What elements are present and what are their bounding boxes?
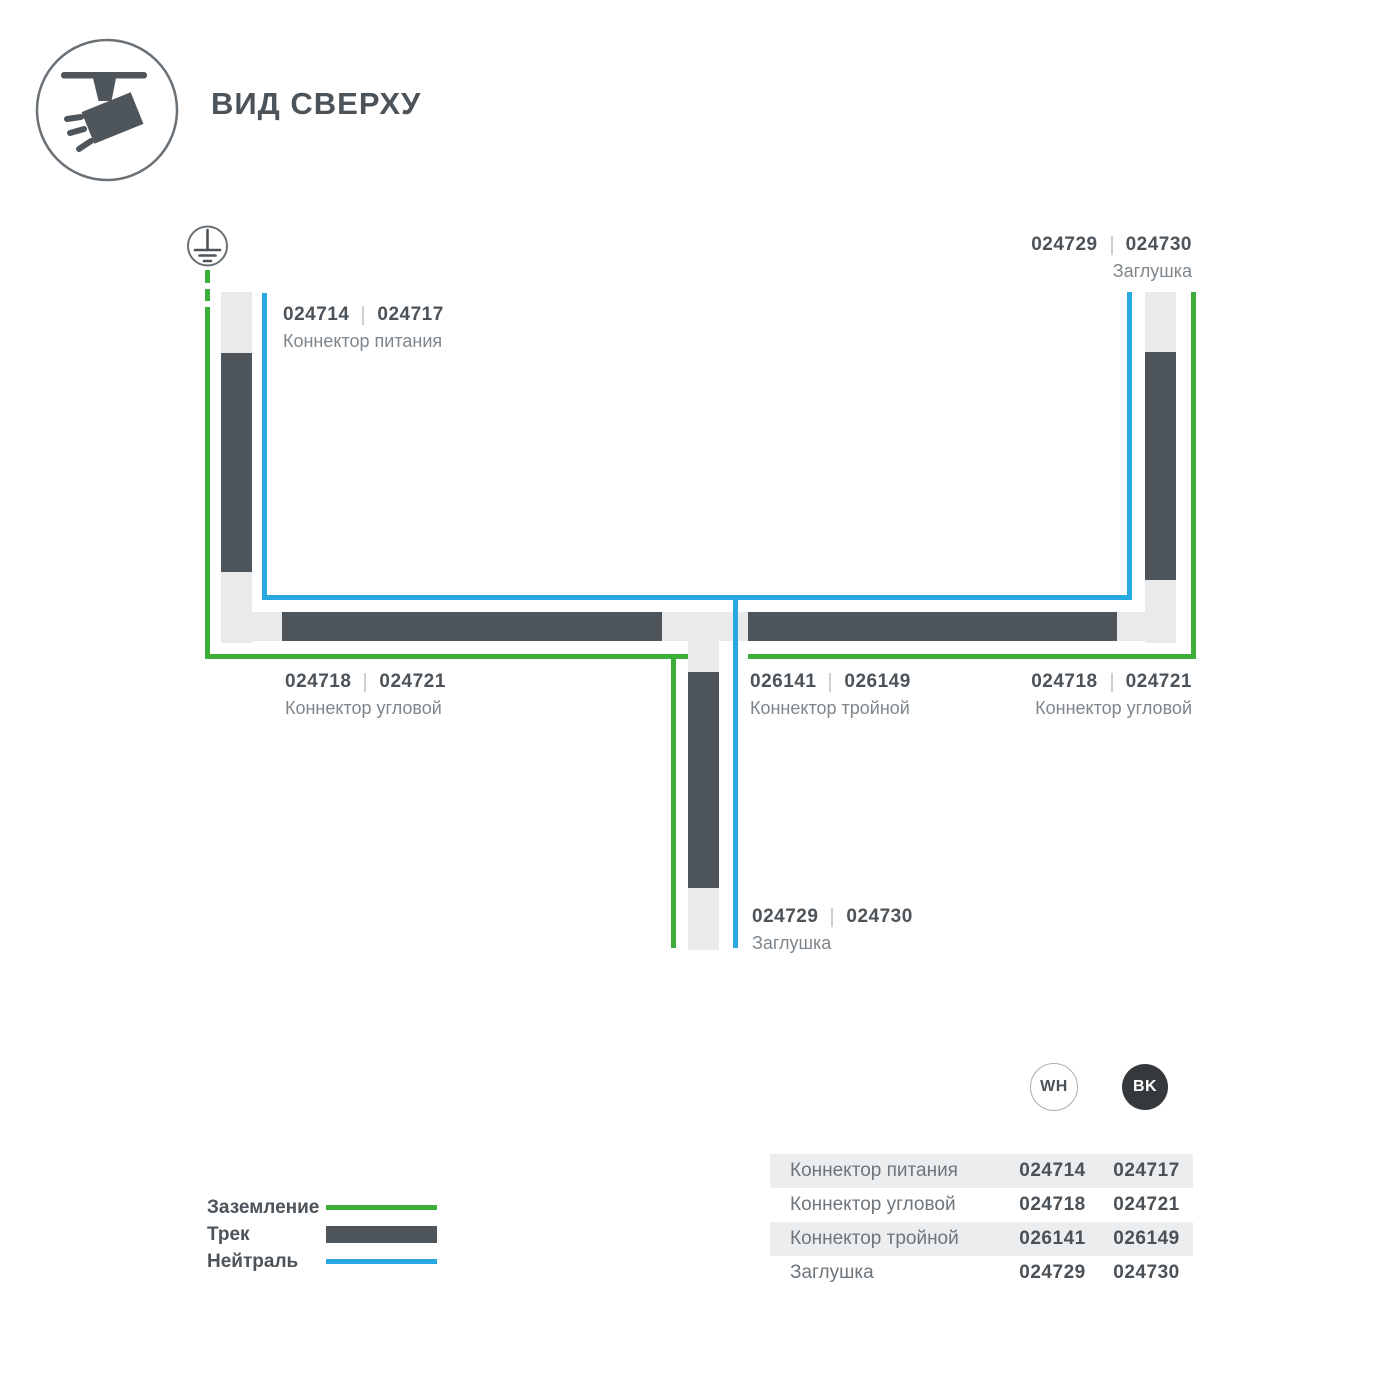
code-bk: 024721 xyxy=(379,671,445,693)
table-row: Коннектор питания 024714 024717 xyxy=(770,1154,1193,1188)
part-code-wh: 024729 xyxy=(1005,1262,1100,1284)
code-pair: 026141 026149 xyxy=(750,671,911,693)
corner-connector-left-arm xyxy=(252,612,282,641)
variant-badge-black: BK xyxy=(1122,1064,1168,1110)
code-bk: 024717 xyxy=(377,304,443,326)
part-table: Коннектор питания 024714 024717 Коннекто… xyxy=(770,1154,1193,1290)
part-code-bk: 024730 xyxy=(1100,1262,1193,1284)
neutral-wire-horizontal xyxy=(262,595,1132,600)
table-row: Коннектор тройной 026141 026149 xyxy=(770,1222,1193,1256)
code-bk: 026149 xyxy=(844,671,910,693)
code-divider xyxy=(1111,673,1113,692)
label-name: Коннектор угловой xyxy=(285,698,446,719)
label-name: Коннектор тройной xyxy=(750,698,911,719)
ground-wire-left xyxy=(205,307,210,659)
page: ВИД СВЕРХУ 024714 024717 xyxy=(0,0,1400,1400)
label-power-connector: 024714 024717 Коннектор питания xyxy=(283,304,444,352)
code-pair: 024714 024717 xyxy=(283,304,444,326)
label-name: Заглушка xyxy=(752,933,913,954)
neutral-wire-left xyxy=(262,293,267,600)
code-pair: 024729 024730 xyxy=(752,906,913,928)
ground-earth-icon xyxy=(185,224,231,270)
code-divider xyxy=(831,908,833,927)
track-spotlight-icon xyxy=(33,36,181,184)
variant-badge-white: WH xyxy=(1030,1063,1078,1111)
part-name: Коннектор угловой xyxy=(770,1194,1005,1216)
part-name: Заглушка xyxy=(770,1262,1005,1284)
code-pair: 024718 024721 xyxy=(1031,671,1192,693)
legend-row-neutral: Нейтраль xyxy=(207,1248,437,1275)
code-wh: 024718 xyxy=(285,671,351,693)
code-bk: 024730 xyxy=(846,906,912,928)
legend-row-ground: Заземление xyxy=(207,1194,437,1221)
ground-wire-stub xyxy=(671,654,676,948)
code-divider xyxy=(829,673,831,692)
ground-wire-dash-1 xyxy=(205,270,210,283)
corner-connector-right-arm xyxy=(1117,612,1145,641)
label-endcap-top-right: 024729 024730 Заглушка xyxy=(1031,234,1192,282)
code-pair: 024729 024730 xyxy=(1031,234,1192,256)
page-title: ВИД СВЕРХУ xyxy=(211,86,421,122)
code-wh: 024729 xyxy=(1031,234,1097,256)
ground-wire-bottom-right xyxy=(748,654,1196,659)
ground-wire-bottom-left xyxy=(205,654,688,659)
label-corner-connector-left: 024718 024721 Коннектор угловой xyxy=(285,671,446,719)
label-triple-connector: 026141 026149 Коннектор тройной xyxy=(750,671,911,719)
neutral-wire-stub xyxy=(733,597,738,948)
neutral-line-swatch xyxy=(326,1259,437,1264)
legend-label: Нейтраль xyxy=(207,1251,326,1273)
track-horizontal-right xyxy=(748,612,1117,641)
legend-label: Трек xyxy=(207,1224,326,1246)
part-code-bk: 024721 xyxy=(1100,1194,1193,1216)
track-bar-swatch xyxy=(326,1226,437,1243)
legend: Заземление Трек Нейтраль xyxy=(207,1194,437,1275)
part-code-bk: 026149 xyxy=(1100,1228,1193,1250)
label-name: Коннектор угловой xyxy=(1035,698,1192,719)
code-bk: 024721 xyxy=(1126,671,1192,693)
legend-label: Заземление xyxy=(207,1197,326,1219)
part-name: Коннектор питания xyxy=(770,1160,1005,1182)
label-endcap-bottom: 024729 024730 Заглушка xyxy=(752,906,913,954)
track-right-vertical xyxy=(1145,352,1176,580)
legend-row-track: Трек xyxy=(207,1221,437,1248)
code-divider xyxy=(1111,236,1113,255)
code-divider xyxy=(364,673,366,692)
table-row: Коннектор угловой 024718 024721 xyxy=(770,1188,1193,1222)
neutral-wire-right xyxy=(1127,292,1132,600)
track-horizontal-left xyxy=(282,612,662,641)
code-bk: 024730 xyxy=(1126,234,1192,256)
ground-wire-right xyxy=(1191,292,1196,659)
part-code-wh: 026141 xyxy=(1005,1228,1100,1250)
track-left-vertical xyxy=(221,353,252,572)
code-wh: 024718 xyxy=(1031,671,1097,693)
code-divider xyxy=(362,306,364,325)
part-name: Коннектор тройной xyxy=(770,1228,1005,1250)
track-stem-vertical xyxy=(688,672,719,888)
label-corner-connector-right: 024718 024721 Коннектор угловой xyxy=(1031,671,1192,719)
part-code-bk: 024717 xyxy=(1100,1160,1193,1182)
code-wh: 026141 xyxy=(750,671,816,693)
label-name: Коннектор питания xyxy=(283,331,444,352)
part-code-wh: 024714 xyxy=(1005,1160,1100,1182)
code-wh: 024729 xyxy=(752,906,818,928)
ground-wire-dash-2 xyxy=(205,289,210,301)
ground-line-swatch xyxy=(326,1205,437,1210)
table-row: Заглушка 024729 024730 xyxy=(770,1256,1193,1290)
part-code-wh: 024718 xyxy=(1005,1194,1100,1216)
label-name: Заглушка xyxy=(1113,261,1192,282)
code-wh: 024714 xyxy=(283,304,349,326)
code-pair: 024718 024721 xyxy=(285,671,446,693)
